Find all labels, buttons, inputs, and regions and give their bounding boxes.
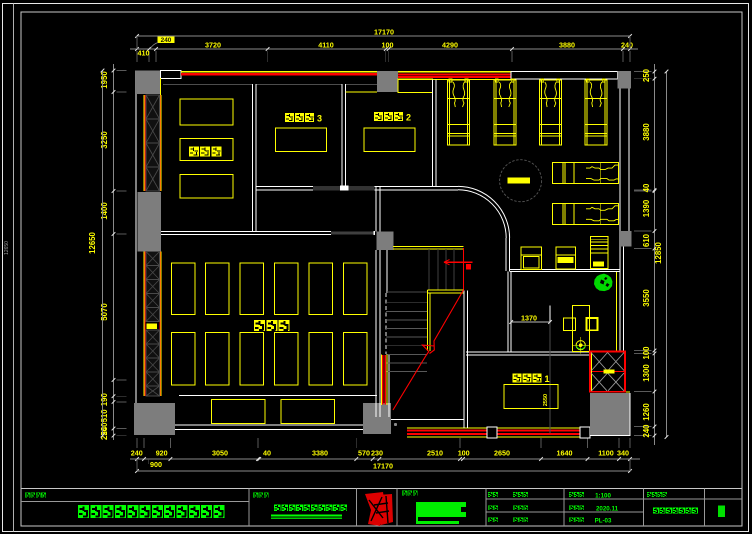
- svg-text:3720: 3720: [205, 41, 221, 50]
- svg-text:3050: 3050: [212, 449, 228, 458]
- svg-text:1100: 1100: [598, 449, 614, 458]
- svg-text:340: 340: [617, 449, 629, 458]
- svg-text:1640: 1640: [557, 449, 573, 458]
- svg-text:1300: 1300: [642, 364, 651, 382]
- svg-text:1: 1: [544, 374, 549, 384]
- svg-text:920: 920: [156, 449, 168, 458]
- svg-text:250: 250: [100, 426, 109, 440]
- svg-text:4290: 4290: [442, 41, 458, 50]
- svg-text:17170: 17170: [374, 28, 394, 37]
- svg-text:2550: 2550: [543, 394, 549, 406]
- svg-text:100: 100: [382, 41, 394, 50]
- svg-text:2650: 2650: [494, 449, 510, 458]
- svg-text:3880: 3880: [559, 41, 575, 50]
- svg-text:240: 240: [131, 449, 143, 458]
- svg-text:190: 190: [100, 393, 109, 407]
- svg-text:3550: 3550: [642, 289, 651, 307]
- svg-text:12650: 12650: [4, 241, 10, 255]
- svg-text:250: 250: [642, 68, 651, 82]
- svg-text:570: 570: [358, 449, 370, 458]
- svg-text:12650: 12650: [88, 231, 97, 253]
- svg-text:1370: 1370: [521, 314, 537, 323]
- svg-text:40: 40: [642, 183, 651, 192]
- svg-text:1400: 1400: [100, 202, 109, 220]
- svg-text:3: 3: [317, 114, 322, 124]
- svg-text:1260: 1260: [642, 403, 651, 421]
- svg-text:2510: 2510: [427, 449, 443, 458]
- svg-text:3880: 3880: [642, 123, 651, 141]
- svg-text:12850: 12850: [654, 241, 663, 263]
- svg-text:1950: 1950: [100, 71, 109, 89]
- svg-text:3380: 3380: [312, 449, 328, 458]
- svg-text:510: 510: [100, 409, 109, 423]
- svg-text:3250: 3250: [100, 131, 109, 149]
- svg-text:2: 2: [406, 113, 411, 123]
- svg-text:610: 610: [642, 233, 651, 247]
- svg-text:240: 240: [161, 37, 172, 44]
- svg-text:240: 240: [642, 424, 651, 438]
- svg-text:900: 900: [150, 460, 162, 469]
- svg-text:2020.11: 2020.11: [596, 506, 619, 513]
- svg-text:1390: 1390: [642, 199, 651, 217]
- svg-text:40: 40: [263, 449, 271, 458]
- svg-text:17170: 17170: [373, 462, 393, 471]
- svg-text:PL-03: PL-03: [595, 518, 612, 525]
- svg-text:5070: 5070: [100, 303, 109, 321]
- svg-text:240: 240: [621, 41, 633, 50]
- svg-text:1:100: 1:100: [595, 492, 611, 499]
- svg-text:100: 100: [642, 346, 651, 360]
- svg-text:4110: 4110: [318, 41, 334, 50]
- svg-text:100: 100: [458, 449, 470, 458]
- svg-text:410: 410: [138, 49, 150, 58]
- svg-text:230: 230: [371, 449, 383, 458]
